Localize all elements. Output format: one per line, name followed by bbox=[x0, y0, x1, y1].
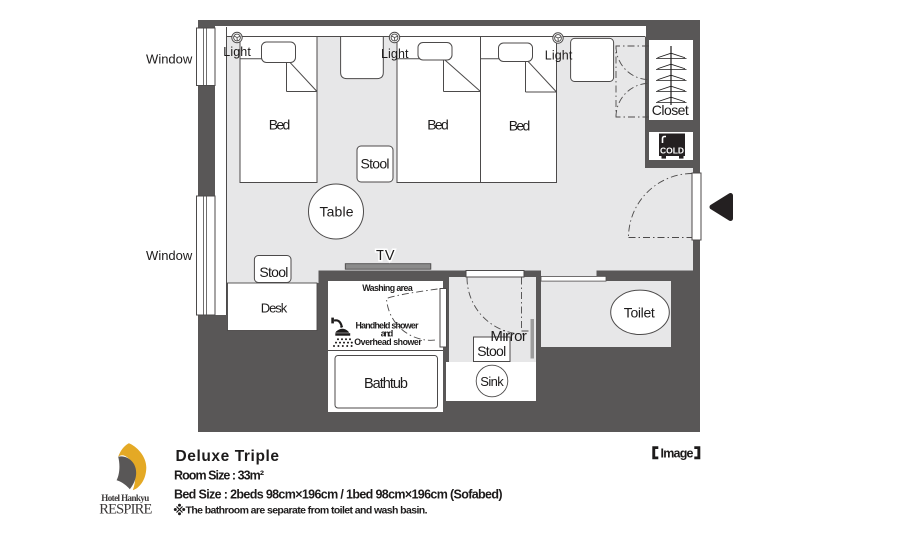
svg-text:Bed: Bed bbox=[269, 117, 291, 133]
svg-text:Table: Table bbox=[320, 204, 354, 220]
svg-text:Bed: Bed bbox=[509, 118, 531, 134]
svg-text:Bathtub: Bathtub bbox=[364, 376, 408, 392]
svg-text:Desk: Desk bbox=[261, 301, 288, 316]
svg-text:RESPIRE: RESPIRE bbox=[99, 502, 152, 518]
svg-text:Deluxe Triple: Deluxe Triple bbox=[176, 448, 280, 465]
svg-text:Stool: Stool bbox=[361, 156, 390, 172]
svg-text:Closet: Closet bbox=[652, 102, 689, 118]
svg-text:Toilet: Toilet bbox=[624, 305, 655, 321]
svg-text:Bed Size : 2beds 98cm×196cm /: Bed Size : 2beds 98cm×196cm / 1bed 98cm×… bbox=[174, 487, 503, 501]
svg-text:Stool: Stool bbox=[259, 264, 288, 280]
svg-text:Sink: Sink bbox=[480, 374, 504, 389]
svg-text:Light: Light bbox=[545, 48, 573, 62]
svg-text:COLD: COLD bbox=[660, 146, 684, 156]
svg-text:The bathroom are separate from: The bathroom are separate from toilet an… bbox=[186, 505, 428, 517]
svg-text:TV: TV bbox=[376, 248, 395, 264]
svg-text:Bed: Bed bbox=[427, 117, 449, 133]
svg-text:Stool: Stool bbox=[477, 343, 506, 359]
svg-text:Window: Window bbox=[146, 52, 193, 67]
svg-text:Light: Light bbox=[223, 45, 251, 59]
svg-text:Room Size : 33m²: Room Size : 33m² bbox=[174, 469, 264, 483]
svg-text:Window: Window bbox=[146, 248, 193, 263]
svg-text:Mirror: Mirror bbox=[490, 328, 527, 345]
svg-text:Image: Image bbox=[661, 446, 694, 460]
svg-text:Overhead shower: Overhead shower bbox=[354, 337, 422, 347]
svg-text:Washing area: Washing area bbox=[362, 283, 413, 293]
svg-text:Light: Light bbox=[381, 47, 409, 61]
